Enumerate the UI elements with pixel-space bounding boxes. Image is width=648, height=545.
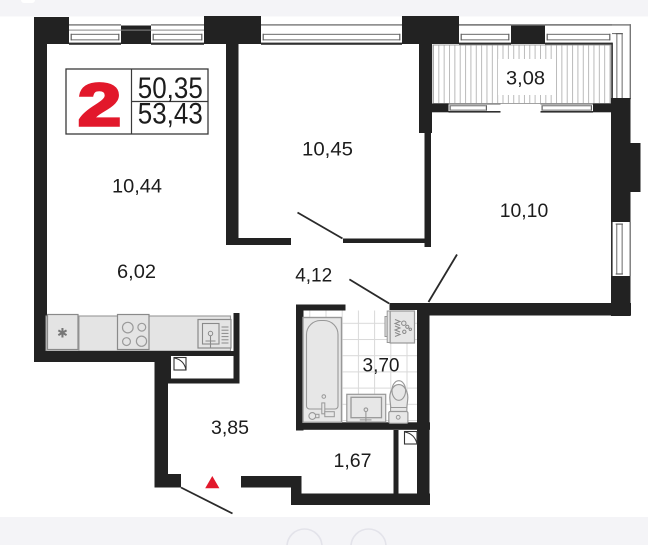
svg-text:3,85: 3,85 xyxy=(211,417,249,439)
svg-text:10,45: 10,45 xyxy=(302,139,353,161)
svg-text:3,08: 3,08 xyxy=(506,68,545,90)
svg-text:2: 2 xyxy=(78,72,122,139)
svg-text:1,67: 1,67 xyxy=(334,450,372,472)
svg-text:6,02: 6,02 xyxy=(117,261,156,283)
svg-text:✱: ✱ xyxy=(57,326,68,341)
svg-text:10,44: 10,44 xyxy=(112,176,162,198)
svg-text:4,12: 4,12 xyxy=(295,265,332,287)
svg-text:53,43: 53,43 xyxy=(138,98,203,131)
svg-text:3,70: 3,70 xyxy=(363,355,400,377)
svg-text:10,10: 10,10 xyxy=(500,200,549,222)
